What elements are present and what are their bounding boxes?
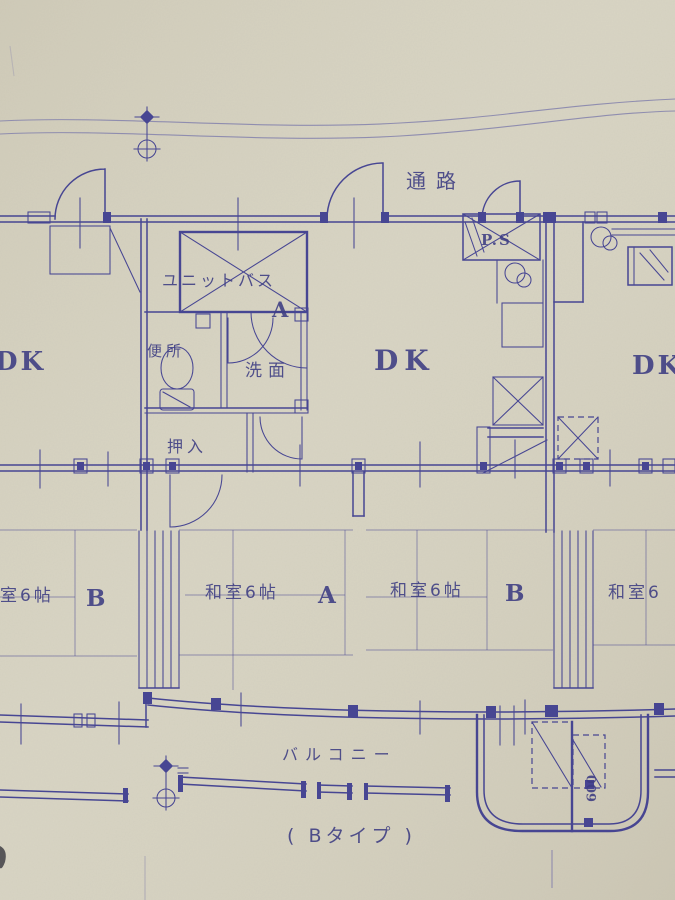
unit-bath-label: ユニットバス [162, 271, 276, 290]
floor-plan-drawing: 通路 P.S ユニットバス A 便所 洗面 押入 DK DK DK 室6帖 B … [0, 0, 675, 900]
room-left-letter: B [86, 585, 105, 612]
floor-plan-photo: 通路 P.S ユニットバス A 便所 洗面 押入 DK DK DK 室6帖 B … [0, 0, 675, 900]
dk-label-right-unit: DK [632, 351, 675, 381]
toilet-label: 便所 [147, 342, 185, 360]
washroom-label: 洗面 [245, 361, 291, 381]
dk-label-left-unit: DK [0, 347, 46, 377]
room-right-label: 和室6 [608, 583, 662, 603]
door-mark-a: A [271, 297, 289, 322]
room-b-label: 和室6帖 [390, 581, 464, 601]
room-a-letter: A [317, 582, 337, 609]
stair-width-dimension: 600 [585, 775, 600, 802]
plan-type-caption: ( Bタイプ ) [287, 825, 416, 847]
room-b-letter: B [505, 580, 524, 607]
paper-grain [0, 0, 675, 900]
balcony-label: バルコニー [282, 745, 397, 764]
room-a-label: 和室6帖 [205, 583, 279, 603]
corridor-label: 通路 [406, 169, 466, 193]
closet-label: 押入 [167, 437, 207, 456]
pipe-space-label: P.S [481, 231, 512, 249]
dk-label-center: DK [374, 344, 435, 377]
room-left-label: 室6帖 [0, 586, 54, 606]
